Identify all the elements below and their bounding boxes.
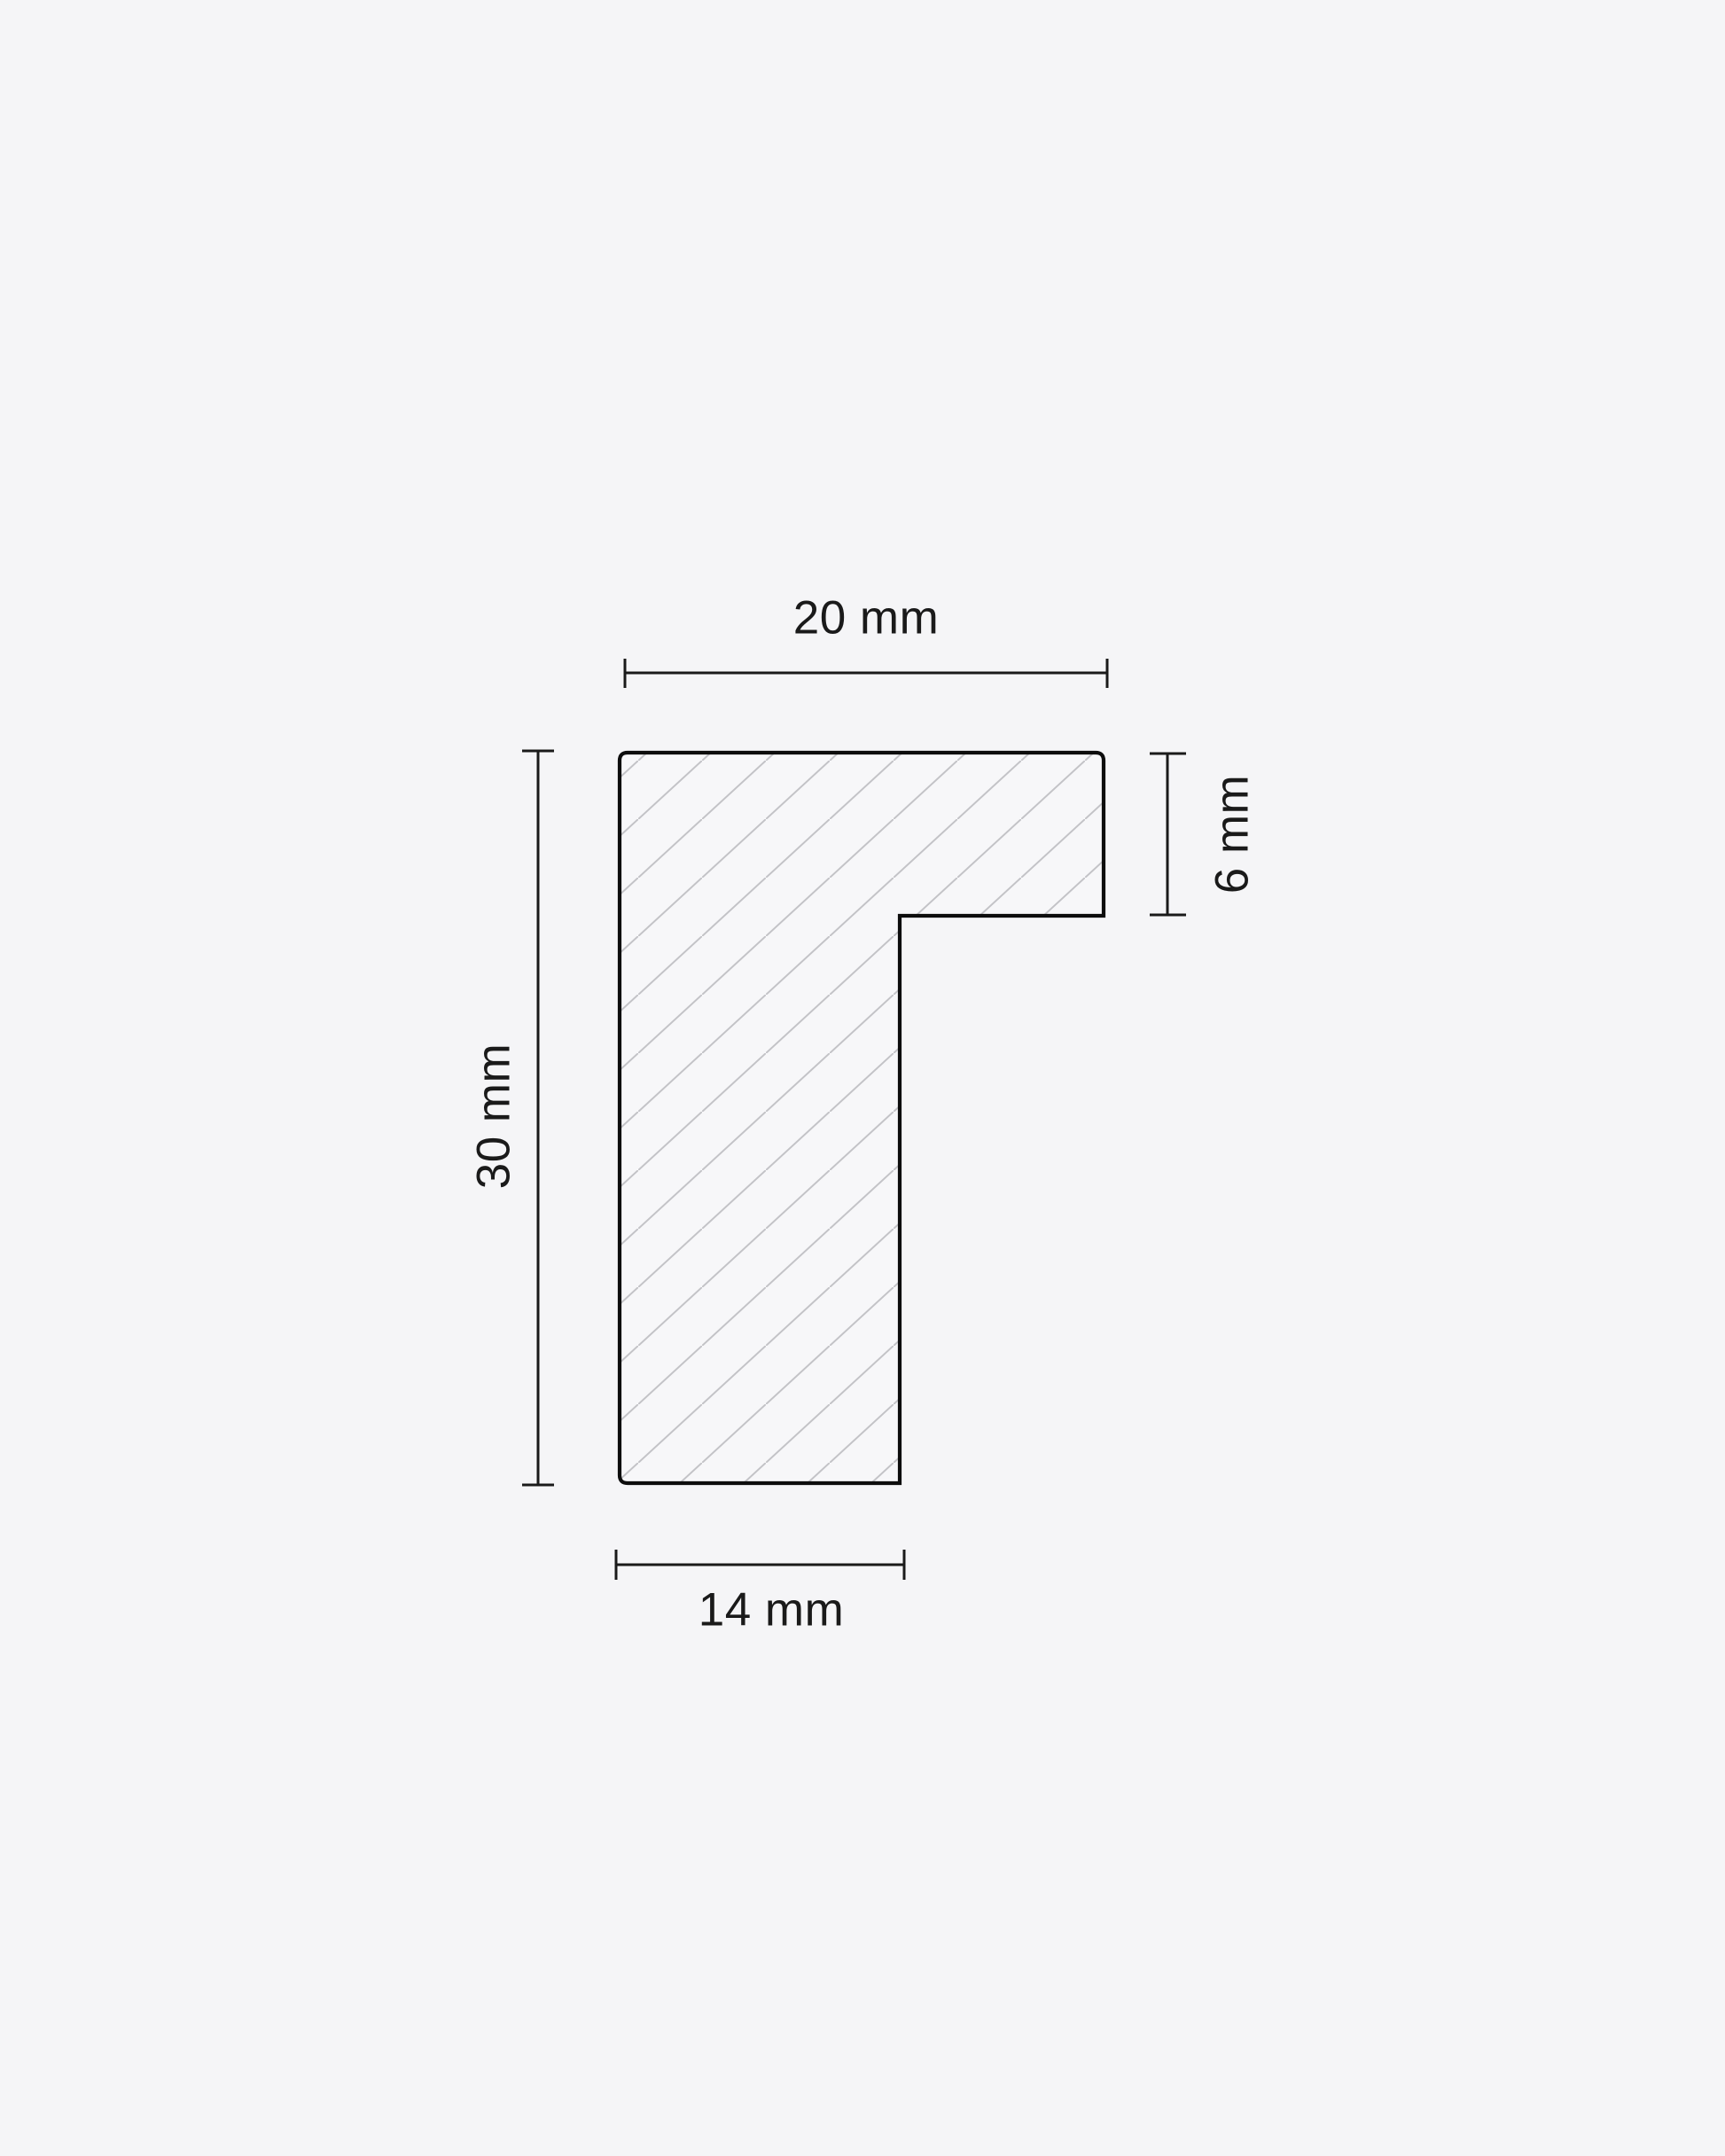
dim-left bbox=[522, 751, 554, 1485]
dim-top-label: 20 mm bbox=[793, 595, 939, 642]
profile-shape bbox=[620, 753, 1104, 1483]
profile-drawing bbox=[0, 0, 1725, 2156]
dim-bottom-label: 14 mm bbox=[699, 1587, 844, 1634]
drawing-canvas: 20 mm 30 mm 6 mm 14 mm bbox=[0, 0, 1725, 2156]
dim-left-label: 30 mm bbox=[471, 1043, 518, 1189]
dim-bottom bbox=[616, 1550, 904, 1580]
dim-right bbox=[1150, 754, 1186, 915]
dim-top bbox=[625, 659, 1107, 688]
dim-right-label: 6 mm bbox=[1209, 775, 1256, 894]
